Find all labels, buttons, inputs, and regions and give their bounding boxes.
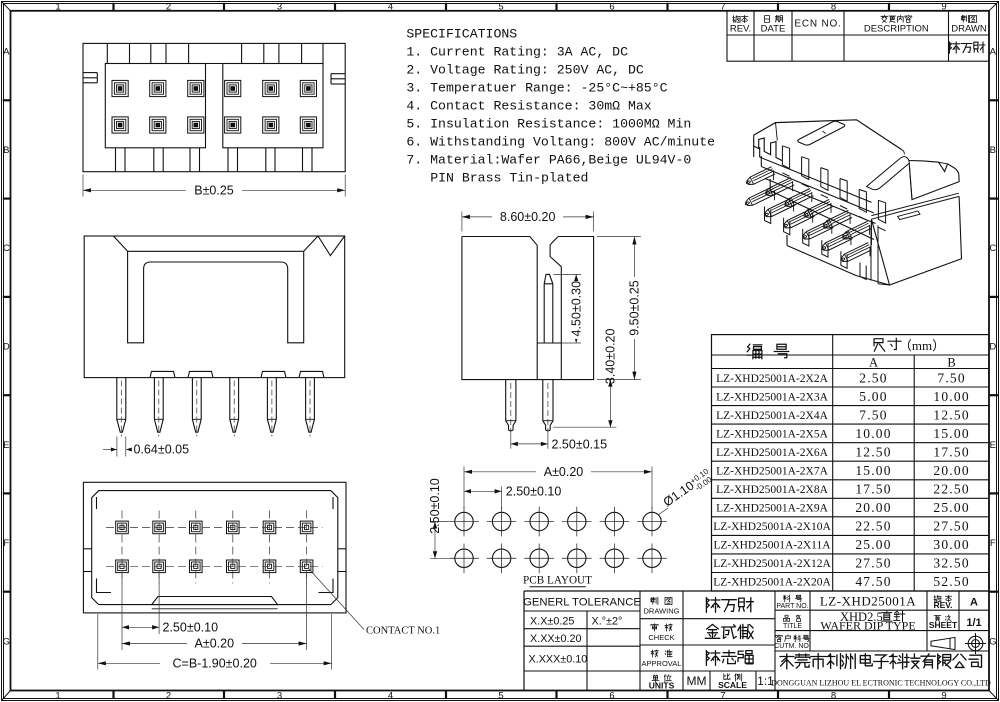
svg-text:DRAWING: DRAWING: [644, 607, 680, 616]
svg-text:LZ-XHD25001A-2X4A: LZ-XHD25001A-2X4A: [716, 410, 828, 422]
svg-text:X.XXX±0.10: X.XXX±0.10: [529, 654, 588, 666]
svg-text:WAFER DIP TYPE: WAFER DIP TYPE: [820, 619, 915, 633]
svg-text:2.50±0.10: 2.50±0.10: [506, 485, 562, 499]
svg-text:6: 6: [609, 691, 614, 702]
svg-text:12.50: 12.50: [855, 444, 891, 459]
svg-text:SHEET: SHEET: [929, 620, 958, 630]
svg-text:5.00: 5.00: [859, 389, 887, 404]
svg-text:15.00: 15.00: [933, 426, 969, 441]
svg-text:A: A: [970, 597, 978, 609]
svg-text:4.50±0.30: 4.50±0.30: [569, 281, 583, 337]
svg-text:A±0.20: A±0.20: [544, 465, 584, 479]
svg-text:9: 9: [941, 691, 946, 702]
svg-text:C: C: [989, 243, 996, 254]
svg-text:LZ-XHD25001A-2X5A: LZ-XHD25001A-2X5A: [716, 428, 828, 440]
svg-text:1: 1: [55, 691, 60, 702]
svg-text:22.50: 22.50: [855, 519, 891, 534]
svg-text:2.50±0.10: 2.50±0.10: [163, 621, 219, 635]
svg-text:2.50±0.15: 2.50±0.15: [552, 437, 608, 451]
svg-text:ECN NO.: ECN NO.: [794, 19, 841, 30]
svg-text:LZ-XHD25001A-2X7A: LZ-XHD25001A-2X7A: [716, 466, 828, 478]
svg-text:22.50: 22.50: [933, 482, 969, 497]
svg-text:LZ-XHD25001A-2X3A: LZ-XHD25001A-2X3A: [716, 391, 828, 403]
svg-text:20.00: 20.00: [855, 500, 891, 515]
svg-text:LZ-XHD25001A-2X8A: LZ-XHD25001A-2X8A: [716, 484, 828, 496]
svg-text:4. Contact Resistance: 30mΩ Ma: 4. Contact Resistance: 30mΩ Max: [406, 98, 651, 113]
svg-text:LZ-XHD25001A-2X2A: LZ-XHD25001A-2X2A: [716, 373, 828, 385]
svg-text:17.50: 17.50: [933, 444, 969, 459]
svg-text:X.°±2°: X.°±2°: [592, 616, 623, 628]
svg-text:APPROVAL: APPROVAL: [642, 659, 682, 668]
svg-text:A: A: [3, 47, 10, 58]
svg-text:3: 3: [277, 691, 282, 702]
svg-text:7.50: 7.50: [859, 407, 887, 422]
svg-text:1. Current Rating: 3A AC, DC: 1. Current Rating: 3A AC, DC: [406, 44, 628, 59]
svg-text:10.00: 10.00: [933, 389, 969, 404]
svg-text:LZ-XHD25001A-2X9A: LZ-XHD25001A-2X9A: [716, 503, 828, 515]
svg-text:F: F: [3, 538, 9, 549]
svg-text:2.50: 2.50: [859, 370, 887, 385]
svg-text:B: B: [990, 145, 996, 156]
svg-text:REV.: REV.: [933, 600, 952, 610]
svg-text:7: 7: [720, 691, 725, 702]
svg-text:12.50: 12.50: [933, 407, 969, 422]
svg-text:3. Temperatuer Range: -25°C~+8: 3. Temperatuer Range: -25°C~+85°C: [406, 80, 667, 95]
svg-text:PCB LAYOUT: PCB LAYOUT: [523, 575, 592, 587]
svg-text:A: A: [990, 47, 997, 58]
svg-text:8.60±0.20: 8.60±0.20: [500, 210, 556, 224]
svg-text:X.X±0.25: X.X±0.25: [530, 616, 574, 628]
svg-text:2: 2: [166, 2, 171, 13]
svg-text:LZ-XHD25001A-2X6A: LZ-XHD25001A-2X6A: [716, 447, 828, 459]
svg-text:G: G: [3, 636, 10, 647]
svg-text:7. Material:Wafer PA66,Beige U: 7. Material:Wafer PA66,Beige UL94V-0: [406, 152, 691, 167]
svg-text:LZ-XHD25001A: LZ-XHD25001A: [820, 594, 916, 609]
svg-text:DESCRIPTION: DESCRIPTION: [864, 24, 929, 35]
svg-text:CUTM. NO.: CUTM. NO.: [774, 643, 811, 650]
svg-text:25.00: 25.00: [933, 500, 969, 515]
svg-text:17.50: 17.50: [855, 482, 891, 497]
svg-text:（mm）: （mm）: [899, 338, 945, 353]
svg-text:4: 4: [388, 2, 393, 13]
svg-text:SCALE: SCALE: [718, 680, 747, 690]
svg-text:B: B: [3, 145, 9, 156]
svg-text:B: B: [947, 355, 955, 369]
svg-text:15.00: 15.00: [855, 463, 891, 478]
svg-text:CONTACT NO.1: CONTACT NO.1: [366, 626, 440, 637]
svg-text:2. Voltage Rating: 250V AC, DC: 2. Voltage Rating: 250V AC, DC: [406, 62, 643, 77]
svg-text:20.00: 20.00: [933, 463, 969, 478]
svg-text:CHECK: CHECK: [648, 633, 674, 642]
svg-text:D: D: [3, 342, 10, 353]
svg-text:6. Withstanding Voltang: 800V: 6. Withstanding Voltang: 800V AC/minute: [406, 134, 715, 149]
svg-text:10.00: 10.00: [855, 426, 891, 441]
svg-text:6: 6: [609, 2, 614, 13]
svg-text:8: 8: [831, 691, 836, 702]
svg-text:X.XX±0.20: X.XX±0.20: [530, 633, 582, 645]
svg-text:C: C: [3, 243, 10, 254]
svg-text:MM: MM: [687, 674, 707, 688]
svg-text:25.00: 25.00: [855, 537, 891, 552]
svg-text:47.50: 47.50: [855, 574, 891, 589]
svg-text:DONGGUAN LIZHOU EL ECTRONIC TE: DONGGUAN LIZHOU EL ECTRONIC TECHNOLOGY C…: [771, 679, 991, 688]
svg-text:52.50: 52.50: [933, 574, 969, 589]
svg-text:5: 5: [498, 2, 503, 13]
svg-text:GENERL TOLERANCE: GENERL TOLERANCE: [523, 597, 641, 609]
svg-text:9.50±0.25: 9.50±0.25: [628, 280, 642, 336]
svg-text:4: 4: [388, 691, 393, 702]
svg-text:E: E: [990, 440, 996, 451]
svg-text:1: 1: [55, 2, 60, 13]
svg-text:A: A: [869, 355, 878, 369]
svg-text:D: D: [989, 342, 996, 353]
svg-text:DRAWN: DRAWN: [951, 24, 987, 35]
svg-text:REV.: REV.: [730, 24, 751, 35]
svg-text:C=B-1.90±0.20: C=B-1.90±0.20: [173, 657, 257, 671]
svg-text:5: 5: [498, 691, 503, 702]
svg-text:SPECIFICATIONS: SPECIFICATIONS: [406, 26, 517, 41]
svg-text:LZ-XHD25001A-2X11A: LZ-XHD25001A-2X11A: [713, 540, 831, 552]
svg-text:G: G: [989, 636, 996, 647]
svg-text:27.50: 27.50: [855, 556, 891, 571]
svg-text:2: 2: [166, 691, 171, 702]
svg-text:32.50: 32.50: [933, 556, 969, 571]
svg-text:PIN Brass Tin-plated: PIN Brass Tin-plated: [430, 170, 588, 185]
svg-text:E: E: [3, 440, 9, 451]
svg-text:7: 7: [720, 2, 725, 13]
svg-text:5. Insulation Resistance: 1000: 5. Insulation Resistance: 1000MΩ Min: [406, 116, 691, 131]
svg-text:PART NO.: PART NO.: [776, 603, 808, 610]
svg-text:1/1: 1/1: [966, 617, 981, 629]
svg-text:F: F: [990, 538, 996, 549]
svg-text:LZ-XHD25001A-2X10A: LZ-XHD25001A-2X10A: [713, 521, 831, 533]
svg-text:LZ-XHD25001A-2X20A: LZ-XHD25001A-2X20A: [713, 577, 831, 589]
svg-text:3: 3: [277, 2, 282, 13]
svg-text:TITLE: TITLE: [783, 623, 802, 630]
svg-text:27.50: 27.50: [933, 519, 969, 534]
svg-text:30.00: 30.00: [933, 537, 969, 552]
svg-text:3.40±0.20: 3.40±0.20: [604, 328, 618, 384]
svg-text:0.64±0.05: 0.64±0.05: [134, 443, 190, 457]
svg-text:7.50: 7.50: [937, 370, 965, 385]
svg-text:LZ-XHD25001A-2X12A: LZ-XHD25001A-2X12A: [713, 558, 831, 570]
svg-text:A±0.20: A±0.20: [195, 637, 235, 651]
svg-text:2.50±0.10: 2.50±0.10: [428, 478, 442, 534]
svg-text:B±0.25: B±0.25: [194, 183, 234, 197]
svg-text:DATE: DATE: [761, 24, 786, 35]
svg-text:UNITS: UNITS: [649, 681, 675, 691]
